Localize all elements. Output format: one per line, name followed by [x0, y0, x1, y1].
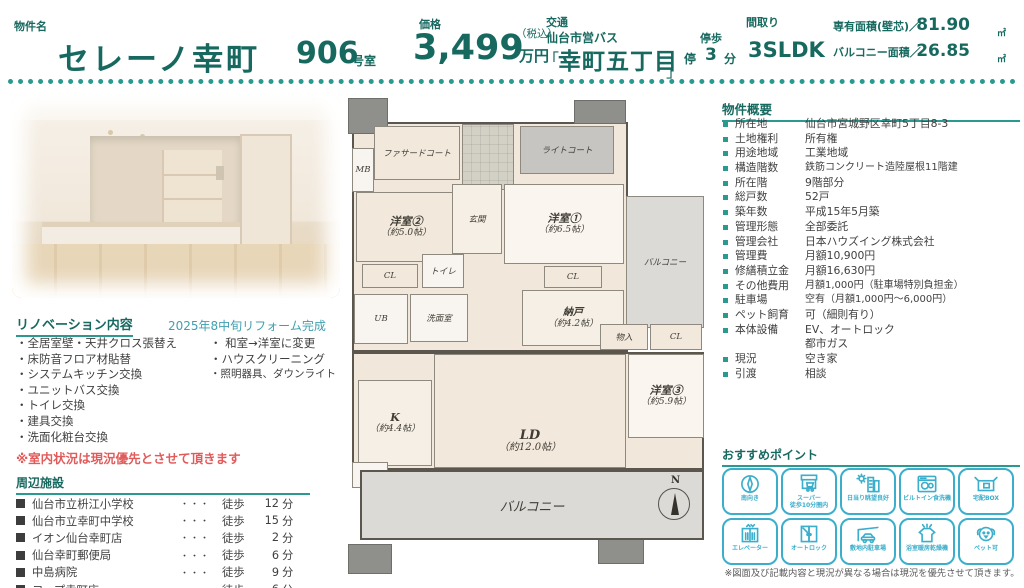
bath-dryer-icon: [914, 522, 940, 546]
property-name: セレーノ幸町: [58, 34, 260, 79]
facility-row: 仙台市立幸町中学校 ・・・ 徒歩 15 分: [16, 512, 310, 529]
renovation-item: ・照明器具、ダウンライト: [210, 367, 336, 383]
renovation-item: ・建具交換: [16, 414, 177, 430]
stop-name: 幸町五丁目: [558, 42, 678, 76]
bullet-icon: [723, 372, 728, 377]
concrete-block: [348, 544, 392, 574]
facility-row: コープ幸町店 ・・・ 徒歩 6 分: [16, 581, 310, 588]
overview-row: 構造階数鉄筋コンクリート造陸屋根11階建: [722, 161, 1020, 176]
renovation-item: ・ 和室→洋室に変更: [210, 336, 336, 352]
compass-north-icon: N: [658, 488, 690, 520]
renovation-item: ・洗面化粧台交換: [16, 430, 177, 446]
kitchen: K （約4.4帖）: [358, 380, 432, 466]
point-tile: ペット可: [958, 518, 1014, 565]
bedroom-1: 洋室① （約6.5帖）: [504, 184, 624, 264]
facility-row: 仙台幸町郵便局 ・・・ 徒歩 6 分: [16, 547, 310, 564]
point-tile: ビルトイン食洗機: [899, 468, 955, 515]
square-bullet-icon: [16, 499, 25, 508]
overview-row: 用途地域工業地域: [722, 146, 1020, 161]
storage-closet: 物入: [600, 324, 648, 350]
overview-row: 管理形態全部委託: [722, 220, 1020, 235]
toilet-room: トイレ: [422, 254, 464, 288]
header-dotted-divider: [8, 78, 1016, 84]
overview-row: 所在階9階部分: [722, 176, 1020, 191]
closet-3: CL: [650, 324, 702, 350]
layout-value: 3SLDK: [748, 38, 825, 62]
bullet-icon: [723, 269, 728, 274]
point-tile: 浴室暖房乾燥機: [899, 518, 955, 565]
walk-unit: 分: [724, 50, 736, 67]
bullet-icon: [723, 284, 728, 289]
property-flyer: 物件名 セレーノ幸町 906 号室 価格 3,499 （税込） 万円 交通 仙台…: [0, 0, 1024, 588]
walk-minutes: 3: [705, 45, 717, 65]
renovation-title: リノベーション内容: [16, 314, 133, 337]
layout-label: 間取り: [746, 14, 779, 30]
property-name-label: 物件名: [14, 18, 47, 34]
bullet-icon: [723, 195, 728, 200]
points-title: おすすめポイント: [722, 446, 1020, 467]
point-tile: オートロック: [781, 518, 837, 565]
point-tile: 敷地内駐車場: [840, 518, 896, 565]
bullet-icon: [723, 254, 728, 259]
bedroom-3: 洋室③ （約5.9帖）: [628, 354, 704, 438]
overview-row: 所在地仙台市宮城野区幸町5丁目8-3: [722, 117, 1020, 132]
overview-row: 引渡相談: [722, 367, 1020, 382]
overview-row: その他費用月額1,000円（駐車場特別負担金）: [722, 279, 1020, 294]
overview-table: 所在地仙台市宮城野区幸町5丁目8-3 土地権利所有権 用途地域工業地域 構造階数…: [722, 117, 1020, 381]
delivery-box-icon: [973, 472, 999, 496]
closet-1: CL: [362, 264, 418, 288]
floor-plan: ファサードコート MB ライトコート 洋室② （約5.0帖） 玄関 洋室① （約…: [348, 96, 716, 578]
overview-row: 現況空き家: [722, 352, 1020, 367]
bullet-icon: [723, 240, 728, 245]
bottom-disclaimer: ※図面及び記載内容と現況が異なる場合は現況を優先させて頂きます。: [722, 565, 1022, 579]
renovation-item: ・システムキッチン交換: [16, 367, 177, 383]
point-tile: 南向き: [722, 468, 778, 515]
bullet-icon: [723, 357, 728, 362]
renovation-item: ・ハウスクリーニング: [210, 352, 336, 368]
bullet-icon: [723, 181, 728, 186]
facilities-title: 周辺施設: [16, 474, 310, 495]
price-value: 3,499: [413, 28, 524, 68]
bullet-icon: [723, 137, 728, 142]
room-number-suffix: 号室: [352, 52, 376, 69]
entrance-hall: 玄関: [452, 184, 502, 254]
point-tile: エレベーター: [722, 518, 778, 565]
overview-row: 総戸数52戸: [722, 190, 1020, 205]
sunny-view-icon: [855, 472, 881, 496]
facade-court: ファサードコート: [374, 126, 460, 180]
walk-label: 停歩: [700, 30, 722, 46]
pet-icon: [973, 522, 999, 546]
bullet-icon: [723, 166, 728, 171]
exclusive-area-value: 81.90: [900, 15, 970, 35]
overview-row: 修繕積立金月額16,630円: [722, 264, 1020, 279]
points-grid: 南向き スーパー 徒歩10分圏内 日当り眺望良好 ビルトイン食洗機: [722, 468, 1020, 565]
bullet-icon: [723, 328, 728, 333]
stop-bracket-open: 「: [543, 46, 559, 70]
square-bullet-icon: [16, 533, 25, 542]
renovation-list-right: ・ 和室→洋室に変更 ・ハウスクリーニング ・照明器具、ダウンライト: [210, 336, 336, 383]
dishwasher-icon: [914, 472, 940, 496]
facility-row: 仙台市立枡江小学校 ・・・ 徒歩 12 分: [16, 495, 310, 512]
balcony-bottom: バルコニー: [360, 470, 704, 540]
square-bullet-icon: [16, 516, 25, 525]
balcony-right: バルコニー: [626, 196, 704, 328]
overview-row: 築年数平成15年5月築: [722, 205, 1020, 220]
bullet-icon: [723, 210, 728, 215]
entrance-porch: [462, 124, 514, 190]
photo-vignette: [12, 94, 340, 298]
parking-icon: [855, 522, 881, 546]
square-bullet-icon: [16, 551, 25, 560]
unit-bath: UB: [354, 294, 408, 344]
overview-row: 駐車場空有（月額1,000円～6,000円）: [722, 293, 1020, 308]
point-tile: 宅配BOX: [958, 468, 1014, 515]
renovation-item: ・トイレ交換: [16, 398, 177, 414]
overview-row: ペット飼育可（細則有り）: [722, 308, 1020, 323]
bullet-icon: [723, 298, 728, 303]
walk-stop: 停: [684, 50, 696, 67]
facilities-table: 仙台市立枡江小学校 ・・・ 徒歩 12 分 仙台市立幸町中学校 ・・・ 徒歩 1…: [16, 495, 310, 588]
facility-row: イオン仙台幸町店 ・・・ 徒歩 2 分: [16, 529, 310, 546]
transit-label: 交通: [546, 14, 568, 30]
elevator-icon: [737, 522, 763, 546]
overview-row: 土地権利所有権: [722, 132, 1020, 147]
interior-photo: [12, 94, 340, 298]
bedroom-2: 洋室② （約5.0帖）: [356, 192, 456, 262]
meter-box: MB: [352, 148, 374, 192]
exclusive-area-unit: ㎡: [997, 26, 1006, 39]
bullet-icon: [723, 313, 728, 318]
balcony-area-value: 26.85: [900, 41, 970, 61]
concrete-block: [574, 100, 626, 124]
bullet-icon: [723, 225, 728, 230]
light-court: ライトコート: [520, 126, 614, 174]
overview-row: 管理会社日本ハウズイング株式会社: [722, 235, 1020, 250]
autolock-icon: [796, 522, 822, 546]
bullet-icon: [723, 122, 728, 127]
balcony-area-unit: ㎡: [997, 52, 1006, 65]
bullet-icon: [723, 151, 728, 156]
washroom: 洗面室: [410, 294, 468, 342]
interior-status-warning: ※室内状況は現況優先とさせて頂きます: [16, 448, 241, 467]
compass-icon: [737, 472, 763, 496]
renovation-item: ・ユニットバス交換: [16, 383, 177, 399]
closet-2: CL: [544, 266, 602, 288]
overview-row: 管理費月額10,900円: [722, 249, 1020, 264]
overview-row: 本体設備EV、オートロック: [722, 323, 1020, 338]
overview-row-continuation: 都市ガス: [722, 337, 1020, 352]
renovation-date-note: 2025年8中旬リフォーム完成: [168, 317, 326, 334]
point-tile: スーパー 徒歩10分圏内: [781, 468, 837, 515]
point-tile: 日当り眺望良好: [840, 468, 896, 515]
renovation-item: ・床防音フロア材貼替: [16, 352, 177, 368]
room-number: 906: [296, 36, 359, 71]
renovation-item: ・全居室壁・天井クロス張替え: [16, 336, 177, 352]
renovation-list-left: ・全居室壁・天井クロス張替え ・床防音フロア材貼替 ・システムキッチン交換 ・ユ…: [16, 336, 177, 445]
square-bullet-icon: [16, 568, 25, 577]
living-dining: LD （約12.0帖）: [434, 354, 626, 468]
facility-row: 中島病院 ・・・ 徒歩 9 分: [16, 564, 310, 581]
supermarket-icon: [796, 472, 822, 496]
